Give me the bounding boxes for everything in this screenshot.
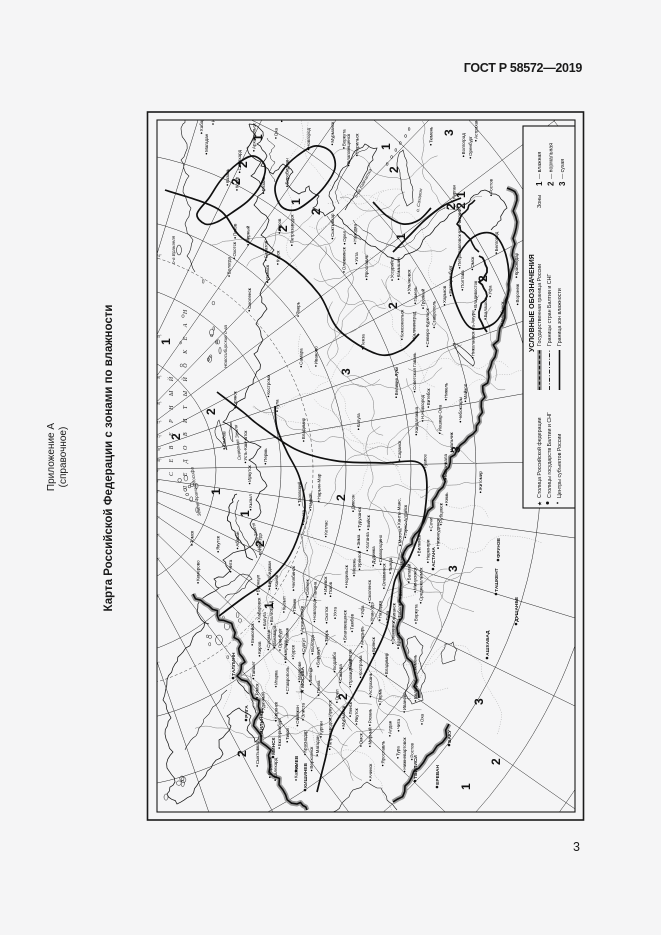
svg-text:2: 2 — [309, 208, 323, 215]
svg-text:БАКУ: БАКУ — [447, 729, 453, 743]
svg-text:Сургут: Сургут — [301, 638, 306, 652]
svg-text:3: 3 — [442, 129, 456, 136]
svg-text:1: 1 — [209, 488, 223, 495]
svg-text:Магадан: Магадан — [204, 133, 209, 151]
svg-text:Волгоград: Волгоград — [461, 133, 466, 155]
svg-text:Хатанга: Хатанга — [365, 532, 370, 549]
svg-text:Ставрополь: Ставрополь — [432, 300, 437, 326]
svg-text:2: 2 — [386, 302, 400, 309]
svg-text:Курган: Курган — [319, 721, 324, 735]
svg-text:Иваново: Иваново — [313, 346, 318, 364]
svg-text:Олекминск: Олекминск — [382, 564, 387, 587]
svg-text:118°: 118° — [155, 447, 162, 451]
svg-text:Сыктывкар: Сыктывкар — [255, 740, 260, 764]
svg-text:Столица Российской федерации: Столица Российской федерации — [536, 418, 543, 498]
svg-text:Уфа: Уфа — [360, 605, 365, 615]
svg-text:Мирный: Мирный — [245, 225, 251, 242]
svg-text:Оха: Оха — [273, 128, 278, 137]
svg-text:Батагай: Батагай — [405, 563, 411, 580]
svg-text:Нальчик: Нальчик — [449, 432, 454, 449]
svg-text:Диксон: Диксон — [351, 494, 356, 509]
svg-text:1: 1 — [159, 338, 173, 345]
svg-text:Ижевск: Ижевск — [265, 265, 270, 280]
svg-text:Надым: Надым — [308, 493, 313, 508]
svg-text:Брянск: Брянск — [371, 637, 376, 652]
svg-text:Петрозаводск: Петрозаводск — [289, 215, 294, 244]
svg-text:АШХАБАД: АШХАБАД — [485, 630, 491, 656]
svg-text:Тура: Тура — [395, 746, 400, 756]
svg-text:80°: 80° — [155, 490, 161, 494]
svg-text:Камышин: Камышин — [396, 257, 401, 278]
svg-text:Охотск: Охотск — [232, 242, 237, 256]
svg-text:3: 3 — [558, 181, 567, 186]
svg-text:Кострома: Кострома — [266, 374, 271, 395]
svg-text:Ижевск: Ижевск — [323, 577, 328, 592]
svg-text:Алдан: Алдан — [387, 720, 392, 734]
svg-text:Сочи: Сочи — [429, 518, 434, 529]
svg-text:Иркутск: Иркутск — [327, 700, 332, 716]
svg-text:РИГА: РИГА — [244, 705, 250, 718]
svg-text:Братск: Братск — [396, 632, 401, 646]
svg-text:Воркута: Воркута — [414, 604, 419, 621]
svg-text:Кемерово: Кемерово — [196, 560, 201, 581]
svg-text:Тайшет: Тайшет — [250, 661, 256, 677]
svg-text:Пермь: Пермь — [263, 448, 268, 462]
svg-text:ЕРЕВАН: ЕРЕВАН — [435, 765, 441, 785]
svg-text:Элиста: Элиста — [301, 703, 306, 718]
svg-text:Биробиджан: Биробиджан — [285, 158, 290, 185]
svg-text:ФРУНЗЕ: ФРУНЗЕ — [496, 537, 502, 558]
svg-text:Вологда: Вологда — [227, 257, 232, 275]
svg-text:Калининград: Калининград — [411, 311, 416, 338]
svg-text:Уренгой: Уренгой — [356, 550, 362, 567]
svg-text:Ярославль: Ярославль — [380, 740, 385, 764]
svg-text:— сухая: — сухая — [560, 159, 566, 179]
svg-text:3: 3 — [339, 368, 353, 375]
svg-text:71°: 71° — [155, 502, 161, 506]
svg-text:Граница зон влажности: Граница зон влажности — [557, 288, 563, 346]
svg-text:Вологда: Вологда — [310, 634, 315, 652]
svg-text:Усть-Камчатск: Усть-Камчатск — [243, 431, 248, 461]
svg-text:Корф: Корф — [235, 176, 240, 188]
svg-text:165°: 165° — [155, 335, 163, 339]
svg-text:Новгород: Новгород — [312, 600, 317, 620]
svg-text:Махачкала: Махачкала — [443, 454, 448, 477]
svg-text:Сусуман: Сусуман — [266, 629, 271, 647]
svg-text:Ставрополь: Ставрополь — [285, 666, 290, 692]
svg-text:Бодайбо: Бодайбо — [331, 651, 337, 670]
svg-text:Н.Новгород: Н.Новгород — [420, 395, 425, 420]
svg-text:Салехард: Салехард — [237, 149, 242, 170]
svg-text:Рязань: Рязань — [261, 176, 266, 191]
svg-text:Челябинск: Челябинск — [291, 566, 296, 588]
svg-text:Енисейск: Енисейск — [249, 623, 255, 643]
svg-text:Чита: Чита — [228, 559, 233, 570]
svg-text:Смоленск: Смоленск — [247, 288, 252, 309]
svg-text:1: 1 — [535, 181, 544, 186]
svg-text:Томск: Томск — [190, 531, 195, 543]
svg-text:Уссурийск: Уссурийск — [389, 257, 395, 278]
svg-text:Центры субъектов России: Центры субъектов России — [557, 434, 563, 498]
svg-text:Иркутск: Иркутск — [247, 465, 252, 481]
svg-text:1: 1 — [394, 233, 408, 240]
svg-text:Екатеринбург: Екатеринбург — [448, 265, 453, 294]
svg-text:Магадан: Магадан — [315, 735, 320, 753]
svg-text:Эгвекинот: Эгвекинот — [390, 620, 395, 641]
svg-text:Л Е Д О В И Т Ы Й О К Е А Н: Л Е Д О В И Т Ы Й О К Е А Н — [181, 306, 189, 491]
svg-text:Якутск: Якутск — [216, 536, 221, 550]
svg-text:Якутск: Якутск — [354, 708, 359, 722]
svg-text:Оренбург: Оренбург — [278, 628, 283, 648]
svg-text:137°: 137° — [155, 420, 163, 424]
svg-text:2: 2 — [547, 181, 556, 186]
svg-text:Абакан: Абакан — [235, 531, 240, 547]
svg-text:Минусинск: Минусинск — [413, 568, 418, 590]
svg-text:Орел: Орел — [342, 231, 347, 242]
svg-text:о-в Врангеля: о-в Врангеля — [171, 235, 176, 264]
svg-text:Биробиджан: Биробиджан — [267, 560, 272, 587]
svg-text:МИНСК: МИНСК — [271, 737, 277, 754]
svg-text:Ачинск: Ачинск — [368, 764, 373, 779]
svg-text:Верхоянск: Верхоянск — [309, 747, 314, 769]
svg-text:Мезень: Мезень — [352, 558, 357, 574]
svg-text:Горно-Алтайск: Горно-Алтайск — [402, 505, 408, 536]
svg-text:Олекминск: Олекминск — [342, 247, 347, 270]
svg-text:Тюмень: Тюмень — [413, 654, 418, 671]
svg-text:МОСКВА: МОСКВА — [300, 666, 306, 687]
svg-text:Никель: Никель — [444, 382, 449, 398]
svg-text:Витебск: Витебск — [426, 388, 431, 405]
svg-text:Туруханск: Туруханск — [357, 507, 362, 528]
svg-text:Саранск: Саранск — [397, 441, 402, 459]
svg-text:2: 2 — [454, 202, 468, 209]
svg-text:С Е В Е Р Н Ы Й: С Е В Е Р Н Ы Й — [167, 373, 175, 476]
svg-text:Комсомольск: Комсомольск — [400, 310, 405, 338]
svg-text:Калуга: Калуга — [262, 612, 267, 627]
svg-text:ДУШАНБЕ: ДУШАНБЕ — [514, 596, 520, 622]
svg-text:Котлас: Котлас — [323, 520, 328, 535]
svg-text:Тында: Тында — [388, 557, 393, 571]
svg-text:Краснодар: Краснодар — [514, 252, 519, 275]
svg-text:Норильск: Норильск — [355, 134, 360, 154]
svg-text:Курск: Курск — [291, 645, 296, 657]
svg-text:ТАШКЕНТ: ТАШКЕНТ — [494, 568, 500, 592]
svg-text:Архангельск: Архангельск — [251, 123, 256, 149]
svg-text:Тула: Тула — [275, 399, 280, 409]
svg-text:Ухта: Ухта — [333, 607, 338, 617]
svg-text:Оленек: Оленек — [305, 579, 310, 595]
svg-text:Анадырь: Анадырь — [359, 626, 364, 645]
svg-text:Столицы государств Балтии и СН: Столицы государств Балтии и СНГ — [547, 412, 553, 498]
svg-text:КИЕВ: КИЕВ — [294, 755, 300, 769]
svg-text:Хабаровск: Хабаровск — [257, 598, 262, 620]
svg-text:Вилюйск: Вилюйск — [416, 535, 422, 553]
svg-text:Благовещенск: Благовещенск — [346, 134, 351, 164]
svg-text:АСТАНА: АСТАНА — [431, 547, 437, 567]
svg-text:Великие Луки: Великие Луки — [394, 366, 399, 395]
svg-text:108°: 108° — [155, 458, 163, 462]
svg-text:Тикси: Тикси — [285, 728, 290, 740]
svg-text:Иваново: Иваново — [402, 692, 407, 710]
svg-text:1: 1 — [289, 198, 303, 205]
svg-text:Тюмень: Тюмень — [428, 126, 433, 143]
svg-text:Нижнеудинск: Нижнеудинск — [436, 519, 441, 547]
svg-text:Улан-Удэ: Улан-Удэ — [258, 532, 263, 552]
svg-text:Полтава: Полтава — [460, 270, 465, 288]
svg-text:Киров: Киров — [277, 218, 282, 231]
svg-text:Зея: Зея — [398, 588, 403, 596]
svg-text:— влажная: — влажная — [537, 152, 543, 179]
svg-text:Могоча: Могоча — [398, 528, 403, 544]
svg-text:1: 1 — [379, 143, 393, 150]
svg-text:Омск: Омск — [359, 733, 364, 744]
svg-text:ТБИЛИСИ: ТБИЛИСИ — [413, 755, 419, 779]
svg-text:Житомир: Житомир — [478, 471, 483, 491]
svg-text:Нерюнгри: Нерюнгри — [426, 539, 431, 560]
svg-text:Охотск: Охотск — [324, 607, 329, 621]
svg-text:146°: 146° — [155, 402, 163, 406]
svg-text:Пенза: Пенза — [360, 334, 365, 347]
svg-text:Барнаул: Барнаул — [255, 574, 260, 592]
svg-text:Ленск: Ленск — [348, 702, 353, 714]
svg-text:о. Сахалин: о. Сахалин — [415, 188, 423, 212]
svg-text:Сковородино: Сковородино — [378, 534, 383, 562]
svg-text:Майкоп: Майкоп — [462, 383, 468, 399]
svg-text:156°: 156° — [155, 376, 163, 380]
svg-text:Томск: Томск — [255, 684, 260, 696]
svg-text:Находка: Находка — [377, 600, 382, 618]
svg-text:Псков: Псков — [233, 223, 238, 236]
svg-text:Тазовский: Тазовский — [296, 482, 302, 504]
svg-text:Владимир: Владимир — [301, 417, 306, 439]
svg-text:Орел: Орел — [335, 689, 340, 700]
svg-text:Абакан: Абакан — [285, 627, 290, 643]
svg-text:Тверь: Тверь — [324, 629, 329, 642]
svg-text:Оренбург: Оренбург — [468, 136, 473, 156]
svg-text:Бийск: Бийск — [365, 515, 371, 527]
svg-text:Жиганск: Жиганск — [392, 603, 397, 620]
svg-text:Липецк: Липецк — [308, 668, 313, 683]
svg-text:Ярославль: Ярославль — [364, 254, 369, 278]
svg-text:Мурманск: Мурманск — [341, 706, 346, 727]
svg-text:Самара: Самара — [299, 348, 304, 365]
svg-text:Тула: Тула — [385, 610, 390, 620]
svg-text:1: 1 — [459, 783, 473, 790]
svg-text:Белгород: Белгород — [494, 231, 499, 251]
svg-text:Самара: Самара — [338, 664, 343, 681]
svg-text:Брянск: Брянск — [233, 391, 238, 406]
svg-text:Челябинск: Челябинск — [500, 302, 505, 324]
svg-text:Николаевск-на-Амуре: Николаевск-на-Амуре — [470, 310, 475, 356]
svg-text:Мурманск: Мурманск — [330, 122, 335, 143]
svg-text:Северная Земля: Северная Земля — [233, 424, 242, 460]
svg-text:Екатеринбург: Екатеринбург — [277, 718, 282, 747]
svg-text:61°: 61° — [155, 516, 161, 520]
svg-text:Мирный: Мирный — [367, 727, 373, 744]
svg-text:Новосибирские о-ва: Новосибирские о-ва — [223, 324, 228, 368]
svg-text:Пенза: Пенза — [316, 680, 321, 693]
svg-text:Нарьян-Мар: Нарьян-Мар — [316, 473, 321, 499]
svg-text:Тобольск: Тобольск — [397, 599, 402, 618]
svg-text:Советская Гавань: Советская Гавань — [412, 352, 417, 390]
svg-text:Канск: Канск — [274, 575, 279, 587]
svg-text:Смоленск: Смоленск — [367, 580, 372, 601]
svg-text:3: 3 — [472, 698, 486, 705]
svg-text:Петрозаводск: Петрозаводск — [327, 719, 332, 748]
svg-text:2: 2 — [204, 408, 218, 415]
svg-text:1: 1 — [238, 510, 252, 517]
svg-text:113°: 113° — [581, 213, 588, 217]
svg-text:ВИЛЬНЮС: ВИЛЬНЮС — [259, 708, 265, 734]
svg-text:Певек: Певек — [292, 599, 297, 612]
svg-text:Онега: Онега — [301, 509, 306, 522]
svg-text:Границы стран Балтии и СНГ: Границы стран Балтии и СНГ — [547, 274, 553, 346]
svg-text:Улан-Удэ: Улан-Удэ — [370, 602, 375, 622]
svg-text:Владивосток: Владивосток — [473, 281, 478, 308]
svg-text:Ульяновск: Ульяновск — [407, 270, 412, 292]
svg-text:52°: 52° — [155, 534, 161, 538]
svg-text:Барнаул: Барнаул — [316, 647, 321, 665]
svg-text:Псков: Псков — [328, 581, 333, 594]
svg-text:174°: 174° — [155, 254, 163, 258]
svg-text:Зоны: Зоны — [537, 195, 543, 208]
svg-text:Воронеж: Воронеж — [515, 284, 520, 302]
svg-text:Ростов: Ростов — [489, 178, 494, 193]
svg-text:Находка: Находка — [353, 224, 358, 242]
svg-text:Чита: Чита — [396, 718, 401, 729]
svg-text:33°: 33° — [155, 594, 161, 598]
svg-text:Ухта: Ухта — [354, 252, 359, 262]
svg-text:Тверь: Тверь — [296, 301, 301, 314]
svg-text:Государственная граница России: Государственная граница России — [537, 264, 543, 346]
svg-text:Архангельск: Архангельск — [299, 606, 304, 632]
svg-text:— нормальная: — нормальная — [549, 143, 555, 179]
svg-text:Нижневартовск: Нижневартовск — [402, 737, 407, 769]
svg-text:Палана: Палана — [312, 581, 317, 597]
svg-text:Курган: Курган — [452, 185, 457, 199]
svg-text:Воронеж: Воронеж — [267, 757, 272, 775]
svg-text:Туапсе: Туапсе — [423, 454, 428, 469]
svg-text:89°: 89° — [155, 479, 161, 483]
svg-text:Грозный: Грозный — [420, 288, 426, 306]
svg-text:Саратов: Саратов — [263, 240, 268, 258]
svg-text:127°: 127° — [155, 435, 163, 439]
svg-text:Уфа: Уфа — [488, 285, 493, 295]
svg-text:Волгоград: Волгоград — [269, 600, 274, 622]
svg-text:106°: 106° — [581, 303, 589, 307]
svg-text:Зима: Зима — [356, 534, 361, 545]
svg-text:Ишим: Ишим — [400, 552, 405, 564]
svg-text:99°: 99° — [155, 469, 161, 473]
svg-text:Провидения: Провидения — [348, 659, 353, 685]
svg-text:Краснодар: Краснодар — [303, 730, 308, 753]
svg-text:Оха: Оха — [420, 713, 425, 722]
svg-text:КИШИНЕВ: КИШИНЕВ — [303, 762, 309, 787]
svg-text:Оймякон: Оймякон — [294, 705, 300, 724]
svg-text:2: 2 — [235, 750, 249, 757]
svg-text:Кострома: Кострома — [358, 655, 363, 676]
svg-text:3: 3 — [446, 565, 460, 572]
svg-text:Северо-Курильск: Северо-Курильск — [425, 308, 430, 344]
svg-text:Кызыл: Кызыл — [248, 494, 253, 508]
svg-text:п-ов Камчатка: п-ов Камчатка — [353, 167, 373, 198]
svg-text:Харьков: Харьков — [442, 285, 447, 303]
svg-text:Удачный: Удачный — [259, 692, 265, 711]
svg-text:23°: 23° — [155, 662, 161, 666]
svg-text:Сыктывкар: Сыктывкар — [330, 213, 335, 237]
svg-text:Анадырь: Анадырь — [279, 100, 284, 119]
svg-text:★: ★ — [299, 689, 306, 694]
svg-text:Благовещенск: Благовещенск — [343, 610, 348, 640]
svg-text:Киренск: Киренск — [273, 702, 278, 719]
svg-text:Салехард: Салехард — [273, 757, 278, 778]
svg-text:Кызыл: Кызыл — [281, 596, 286, 610]
svg-text:Киров: Киров — [257, 641, 262, 654]
svg-text:★: ★ — [538, 501, 544, 506]
svg-text:Казань: Казань — [225, 168, 230, 183]
svg-text:Белгород: Белгород — [413, 679, 418, 699]
svg-text:Кандалакша: Кандалакша — [414, 406, 419, 432]
svg-text:42°: 42° — [155, 558, 161, 562]
svg-text:Курск: Курск — [275, 251, 280, 263]
svg-text:2: 2 — [489, 758, 503, 765]
svg-text:Норильск: Норильск — [344, 565, 349, 585]
svg-text:Тамбов: Тамбов — [222, 431, 227, 447]
svg-text:Дудинка: Дудинка — [371, 546, 376, 564]
svg-text:2: 2 — [387, 166, 401, 173]
svg-text:Пермь: Пермь — [378, 688, 383, 702]
svg-text:Владимир: Владимир — [384, 652, 389, 674]
svg-text:Рязань: Рязань — [367, 708, 372, 723]
svg-text:Кемь: Кемь — [444, 492, 449, 503]
svg-text:УСЛОВНЫЕ ОБОЗНАЧЕНИЯ: УСЛОВНЫЕ ОБОЗНАЧЕНИЯ — [529, 254, 536, 352]
svg-text:Йошкар-Ола: Йошкар-Ола — [435, 404, 442, 431]
svg-text:Астрахань: Астрахань — [368, 672, 373, 695]
svg-text:Ванавара: Ванавара — [272, 625, 277, 646]
svg-text:Омск: Омск — [470, 257, 475, 268]
svg-text:Ханты-Манс.: Ханты-Манс. — [397, 498, 402, 525]
svg-text:Калуга: Калуга — [356, 413, 361, 428]
svg-text:Новгород: Новгород — [306, 128, 311, 148]
svg-text:Гомель: Гомель — [413, 286, 418, 302]
svg-text:Тамбов: Тамбов — [350, 613, 355, 629]
svg-text:Среднеколымск: Среднеколымск — [418, 568, 423, 601]
svg-text:Земля Франца Иосифа: Земля Франца Иосифа — [189, 466, 202, 516]
svg-text:Игарка: Игарка — [274, 670, 279, 685]
svg-text:ТАЛЛИНН: ТАЛЛИНН — [231, 652, 237, 676]
svg-text:2: 2 — [334, 494, 348, 501]
